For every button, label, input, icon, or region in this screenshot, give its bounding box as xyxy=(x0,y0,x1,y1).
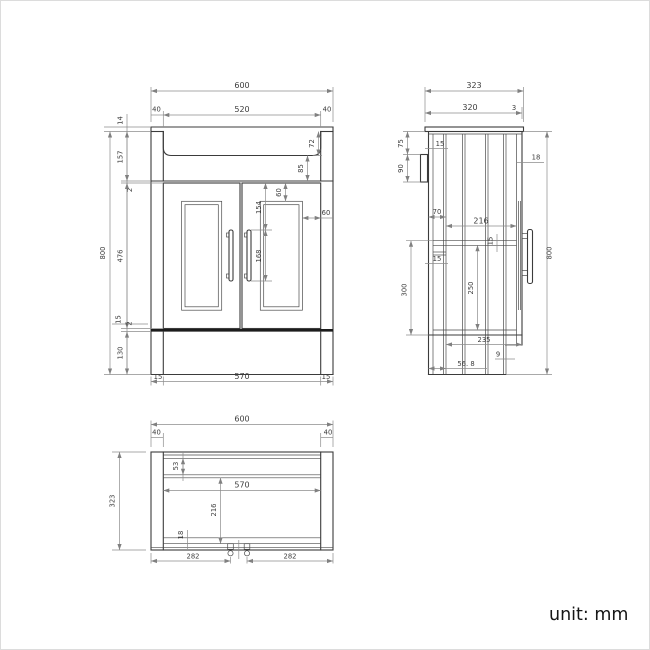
basin-outline xyxy=(163,132,320,156)
front-view-outline xyxy=(151,127,333,375)
sv-dim-back-rail: 15 xyxy=(433,255,442,263)
fv-dim-base-width: 570 xyxy=(234,372,249,381)
pv-dim-side-left: 40 xyxy=(152,429,161,437)
plan-view: 600 40 40 323 53 570 216 18 xyxy=(109,415,334,564)
sv-dim-worktop-depth: 320 xyxy=(462,103,477,112)
fv-dim-top-gap: 2 xyxy=(126,188,134,192)
pv-dim-overall-width: 600 xyxy=(234,415,249,424)
side-view-outline xyxy=(421,127,533,375)
fv-dim-worktop-end-left: 40 xyxy=(152,106,161,114)
fv-dim-worktop-thickness: 14 xyxy=(117,116,125,125)
left-door-panel xyxy=(182,201,222,310)
fv-dim-base-left: 15 xyxy=(154,373,163,381)
pv-dim-fixing-right: 282 xyxy=(284,553,297,561)
fv-dim-top-section: 157 xyxy=(117,151,125,164)
pv-dim-side-right: 40 xyxy=(324,429,333,437)
vanity-unit-drawing: 600 520 40 40 14 157 2 476 xyxy=(0,0,650,650)
sv-dim-depth-overall: 323 xyxy=(466,81,481,90)
sv-dim-plinth-recess: 56. 8 xyxy=(457,360,474,368)
fv-dim-handle-length: 168 xyxy=(255,250,263,263)
fv-dim-worktop-end-right: 40 xyxy=(323,106,332,114)
pv-dim-inner-depth: 216 xyxy=(210,504,218,517)
fv-dim-plinth-height: 130 xyxy=(117,347,125,360)
fv-dim-panel-side-inset: 60 xyxy=(322,209,331,217)
sv-dim-door-thickness: 18 xyxy=(532,154,541,162)
pv-dim-fixing-left: 282 xyxy=(187,553,200,561)
fv-dim-overall-width: 600 xyxy=(234,81,249,90)
sv-dim-worktop-lip: 3 xyxy=(512,104,516,112)
sv-dim-plinth-thickness: 9 xyxy=(496,351,500,359)
fv-dim-basin-width: 520 xyxy=(234,105,249,114)
fv-dim-basin-to-doors: 85 xyxy=(297,164,305,173)
sv-dim-back-panel: 15 xyxy=(436,140,445,148)
fv-dim-bottom-gap: 2 xyxy=(126,321,134,325)
wall-bracket xyxy=(421,155,428,183)
fv-dim-panel-top-inset: 60 xyxy=(275,188,283,197)
sv-dim-shelf-thickness: 15 xyxy=(487,237,495,246)
sv-dim-bracket-top: 75 xyxy=(397,139,405,148)
sv-dim-bracket-height: 90 xyxy=(397,164,405,173)
right-door-handle xyxy=(245,230,252,281)
side-view: 323 320 3 15 75 90 70 18 216 xyxy=(397,81,554,375)
fv-dim-handle-offset: 154 xyxy=(255,201,263,214)
image-border xyxy=(1,1,650,650)
pv-dim-inner-width: 570 xyxy=(234,481,249,490)
fv-dim-bottom-rail: 15 xyxy=(115,315,123,324)
fv-dim-base-right: 15 xyxy=(322,373,331,381)
pv-dim-back-rail: 53 xyxy=(172,462,180,471)
sv-dim-shelf-to-plinth: 300 xyxy=(401,284,409,297)
unit-label: unit: mm xyxy=(549,605,628,625)
sv-dim-bottom-depth: 235 xyxy=(478,336,491,344)
side-handle xyxy=(522,230,533,284)
sv-dim-clear-height: 250 xyxy=(467,282,475,295)
pv-dim-front-rail: 18 xyxy=(177,531,185,540)
pv-dim-depth-overall: 323 xyxy=(109,495,117,508)
sv-dim-shelf-depth: 216 xyxy=(473,217,488,226)
fv-dim-basin-depth: 72 xyxy=(308,139,316,148)
worktop-side xyxy=(425,127,524,132)
technical-drawing-page: 600 520 40 40 14 157 2 476 xyxy=(0,0,650,650)
fv-dim-overall-height: 800 xyxy=(99,247,107,260)
side-view-dimensions: 323 320 3 15 75 90 70 18 216 xyxy=(397,81,554,375)
sv-dim-overall-height: 800 xyxy=(546,247,554,260)
plan-view-dimensions: 600 40 40 323 53 570 216 18 xyxy=(109,415,334,564)
fv-dim-door-height: 476 xyxy=(117,250,125,263)
right-door-panel xyxy=(260,201,302,310)
left-door-handle xyxy=(227,230,234,281)
front-view: 600 520 40 40 14 157 2 476 xyxy=(99,81,333,386)
sv-dim-top-rail: 70 xyxy=(433,208,442,216)
